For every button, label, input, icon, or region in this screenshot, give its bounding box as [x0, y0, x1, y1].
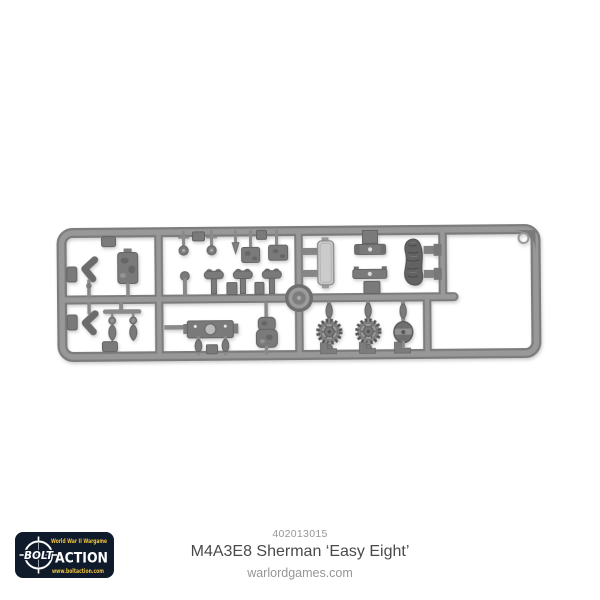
- tow-shackle-parts: [105, 303, 139, 340]
- sprue-image: [54, 221, 547, 370]
- idler-wheel-part: [394, 322, 413, 343]
- drive-sprocket-part: [357, 320, 380, 343]
- lifting-hook-lower-part: [85, 304, 95, 332]
- crew-hatch-door-part: [301, 237, 333, 288]
- product-photo: BOLT World War II Wargame ACTION www.bol…: [0, 0, 600, 600]
- engine-deck-plate-part: [164, 321, 238, 339]
- product-code: 402013015: [0, 528, 600, 540]
- gun-mantlet-part: [256, 303, 277, 353]
- hinge-bracket-lower-part: [353, 266, 387, 293]
- wheel-runner-stems: [326, 302, 407, 321]
- drive-sprocket-part: [318, 320, 341, 343]
- lifting-hook-upper-part: [85, 260, 95, 297]
- product-title: M4A3E8 Sherman ‘Easy Eight’: [0, 543, 600, 561]
- antenna-mount-parts: [180, 269, 281, 295]
- website-text: warlordgames.com: [0, 566, 600, 580]
- stowage-box-part: [118, 248, 138, 296]
- bullet-pendant-parts: [195, 338, 229, 354]
- round-hatch-part: [285, 284, 313, 312]
- tarpaulin-roll-part: [404, 239, 442, 285]
